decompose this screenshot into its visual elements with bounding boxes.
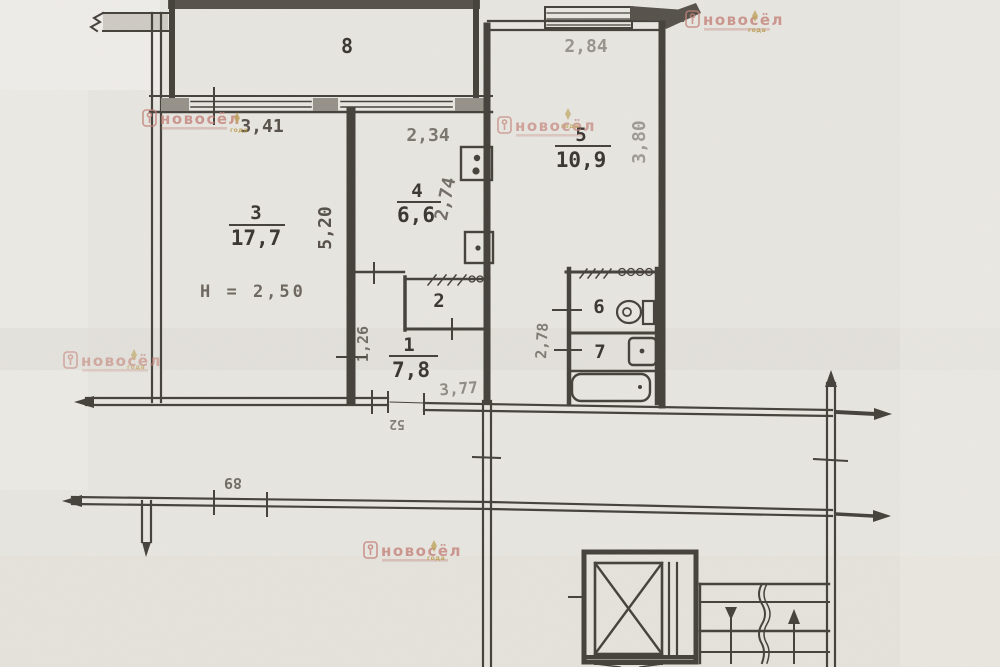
scan-noise-overlay	[0, 0, 1000, 667]
floor-plan: 8 3 17,7 4 6,6 5 10,9 1 7,8 2 6 7 H = 2,…	[0, 0, 1000, 667]
scanned-floor-plan-page: 8 3 17,7 4 6,6 5 10,9 1 7,8 2 6 7 H = 2,…	[0, 0, 1000, 667]
